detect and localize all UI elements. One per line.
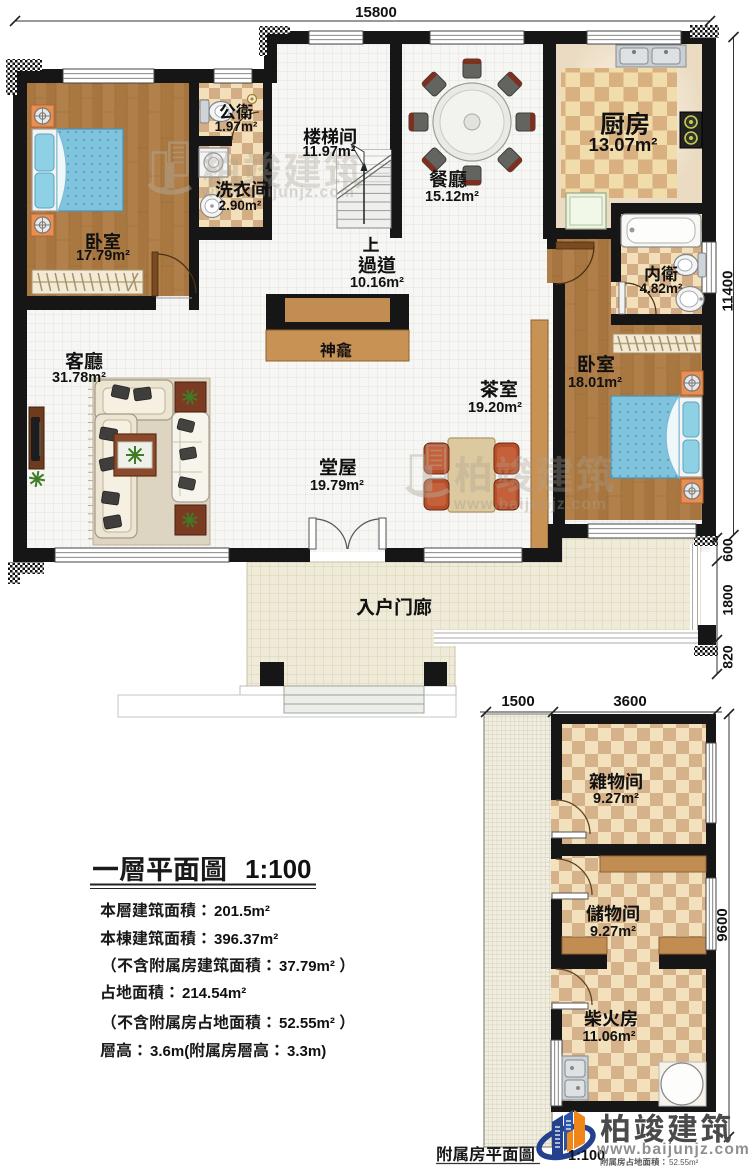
svg-text:www.baijunjz.com: www.baijunjz.com [453, 496, 607, 513]
svg-text:3.6m(: 3.6m( [150, 1043, 189, 1060]
svg-text:11.06m²: 11.06m² [582, 1029, 635, 1045]
svg-text:15.12m²: 15.12m² [425, 189, 479, 205]
svg-text:31.78m²: 31.78m² [52, 370, 106, 386]
svg-text:201.5m²: 201.5m² [214, 903, 270, 920]
svg-text:17.79m²: 17.79m² [76, 248, 130, 264]
svg-text:214.54m²: 214.54m² [182, 985, 246, 1002]
svg-text:1.97m²: 1.97m² [215, 119, 258, 134]
svg-text:820: 820 [720, 645, 736, 669]
svg-text:52.55m²: 52.55m² [279, 1015, 335, 1032]
svg-text:52.55m²: 52.55m² [669, 1158, 699, 1167]
svg-text:2.90m²: 2.90m² [219, 198, 262, 213]
svg-text:600: 600 [720, 538, 736, 562]
svg-text:18.01m²: 18.01m² [568, 375, 622, 391]
svg-text:10.16m²: 10.16m² [350, 275, 404, 291]
svg-text:13.07m²: 13.07m² [589, 134, 658, 155]
svg-text:19.79m²: 19.79m² [310, 478, 364, 494]
svg-text:37.79m²: 37.79m² [279, 958, 335, 975]
svg-text:396.37m²: 396.37m² [214, 931, 278, 948]
svg-text:1800: 1800 [720, 584, 736, 615]
svg-text:www.baijunjz.com: www.baijunjz.com [596, 1141, 750, 1158]
svg-text:11400: 11400 [720, 271, 737, 312]
svg-text:1:100: 1:100 [245, 854, 312, 884]
svg-text:11.97m²: 11.97m² [302, 144, 355, 160]
svg-text:9600: 9600 [714, 908, 731, 941]
svg-text:19.20m²: 19.20m² [468, 400, 522, 416]
svg-text:1500: 1500 [501, 693, 534, 710]
svg-text:3.3m): 3.3m) [287, 1043, 326, 1060]
svg-text:9.27m²: 9.27m² [590, 924, 636, 940]
svg-text:3600: 3600 [613, 693, 646, 710]
svg-text:15800: 15800 [355, 4, 397, 21]
svg-text:4.82m²: 4.82m² [640, 281, 683, 296]
svg-text:9.27m²: 9.27m² [593, 791, 639, 807]
